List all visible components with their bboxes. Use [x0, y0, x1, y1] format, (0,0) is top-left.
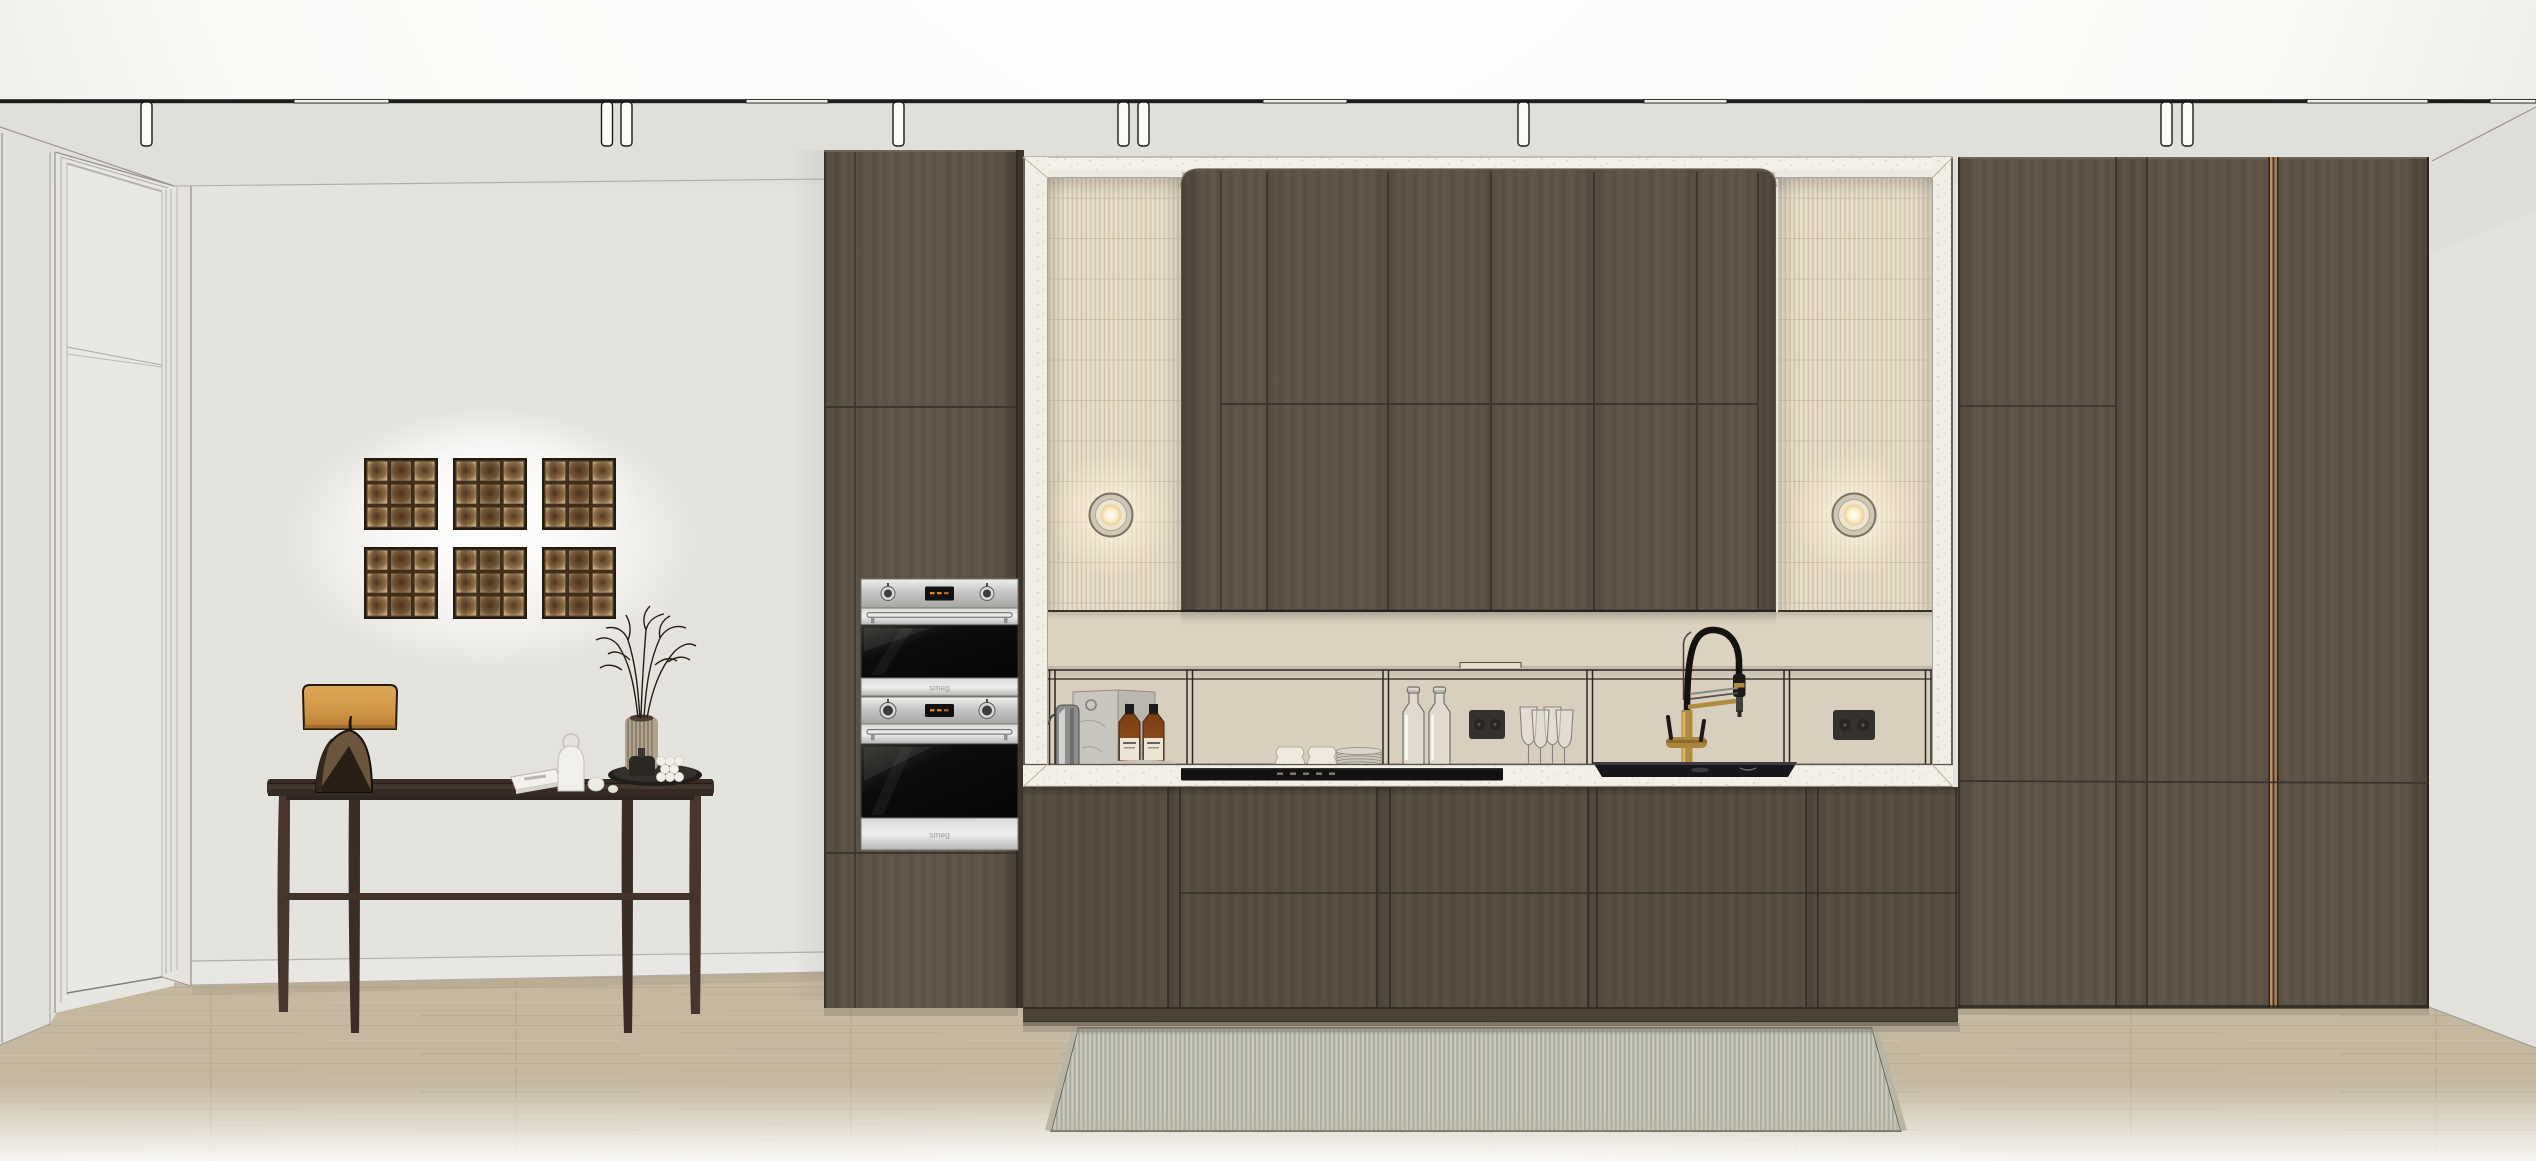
svg-text:smeg: smeg [929, 830, 950, 840]
svg-text:smeg: smeg [929, 683, 950, 693]
